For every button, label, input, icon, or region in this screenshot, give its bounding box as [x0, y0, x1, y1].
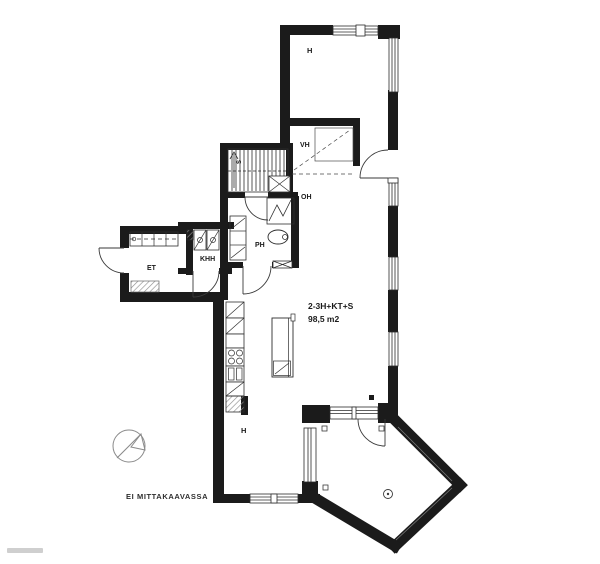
wall-segment — [120, 226, 190, 234]
room-label-stairs: S — [237, 160, 243, 164]
closet-rail-dashed — [294, 130, 350, 170]
room-label-bathroom: PH — [255, 242, 265, 249]
wall-segment — [388, 366, 398, 406]
wall-segment — [388, 290, 398, 332]
terrace-railing-line — [398, 427, 452, 481]
room-label-living: OH — [301, 194, 312, 201]
closet-shelf — [315, 128, 353, 161]
kitchen-hatch-cabinet — [226, 396, 244, 412]
door-arc — [99, 248, 124, 273]
window-mullion — [352, 407, 356, 419]
wall-segment — [226, 262, 243, 268]
window — [304, 428, 316, 482]
wall-segment — [220, 143, 228, 300]
wall-segment — [220, 192, 245, 198]
dryer-diagonal — [207, 230, 219, 250]
room-label-bedroom-bottom: H — [241, 426, 246, 435]
window — [333, 26, 378, 35]
window-sill-mark — [388, 178, 398, 183]
closet-fittings — [292, 128, 353, 174]
wall-segment — [291, 196, 299, 268]
compass-icon — [113, 430, 145, 462]
wall-diagonal — [396, 421, 460, 485]
washer-diagonal — [194, 230, 206, 250]
walls — [120, 25, 460, 546]
scale-note-label: EI MITTAKAAVASSA — [126, 492, 208, 501]
stairs — [228, 149, 290, 192]
watermark — [7, 548, 43, 553]
apartment-area-label: 98,5 m2 — [308, 314, 339, 324]
floor-plan: H VH OH S PH KHH ET H 2-3H+KT+S 98,5 m2 … — [0, 0, 600, 564]
window-mullion — [356, 25, 365, 36]
bathroom-fixtures — [230, 198, 294, 268]
window — [389, 257, 398, 290]
compass-line — [117, 434, 141, 458]
watermark-text-blur — [7, 548, 43, 553]
shower-symbol — [269, 200, 291, 221]
wall-segment — [178, 268, 193, 274]
wall-diagonal — [313, 497, 395, 546]
wall-segment — [213, 494, 253, 503]
wall-segment — [282, 118, 360, 126]
wall-segment — [378, 25, 400, 39]
floor-drain-center — [387, 493, 389, 495]
room-label-bedroom-top: H — [307, 46, 312, 55]
wall-segment — [388, 206, 398, 257]
wall-segment — [219, 268, 232, 274]
wall-segment — [120, 226, 129, 248]
wall-segment — [213, 292, 224, 502]
floor-plan-page: H VH OH S PH KHH ET H 2-3H+KT+S 98,5 m2 … — [0, 0, 600, 564]
island-tap — [291, 314, 295, 321]
door-arc — [243, 266, 271, 294]
room-label-entry: ET — [147, 265, 157, 272]
terrace-post — [323, 485, 328, 490]
terrace-railing-line — [396, 488, 452, 540]
door-arc — [245, 197, 268, 220]
window — [389, 38, 398, 92]
wall-marker — [369, 395, 374, 400]
door-arc — [360, 150, 388, 178]
entry-fixtures — [130, 232, 178, 292]
terrace-post — [322, 426, 327, 431]
toilet — [268, 230, 288, 244]
window-mullion — [271, 494, 277, 503]
counter — [226, 334, 244, 348]
wall-diagonal — [395, 485, 460, 546]
wall-segment — [302, 405, 330, 423]
utility-hatch — [187, 230, 193, 240]
terrace-post — [379, 426, 384, 431]
apartment-type-label: 2-3H+KT+S — [308, 301, 354, 311]
kitchen-fixtures — [226, 302, 295, 412]
wall-segment — [388, 90, 398, 150]
room-label-closet: VH — [300, 142, 310, 149]
toilet-flush — [283, 235, 288, 240]
room-label-utility: KHH — [200, 256, 215, 263]
wall-segment — [280, 25, 290, 147]
labels: H VH OH S PH KHH ET H 2-3H+KT+S 98,5 m2 … — [126, 46, 354, 501]
door-arc — [358, 419, 385, 446]
sink-cabinet-diagonal — [231, 247, 245, 258]
wall-segment — [353, 120, 360, 166]
window — [389, 332, 398, 366]
island-sink-diagonal — [275, 363, 289, 374]
entry-mat — [131, 281, 159, 292]
